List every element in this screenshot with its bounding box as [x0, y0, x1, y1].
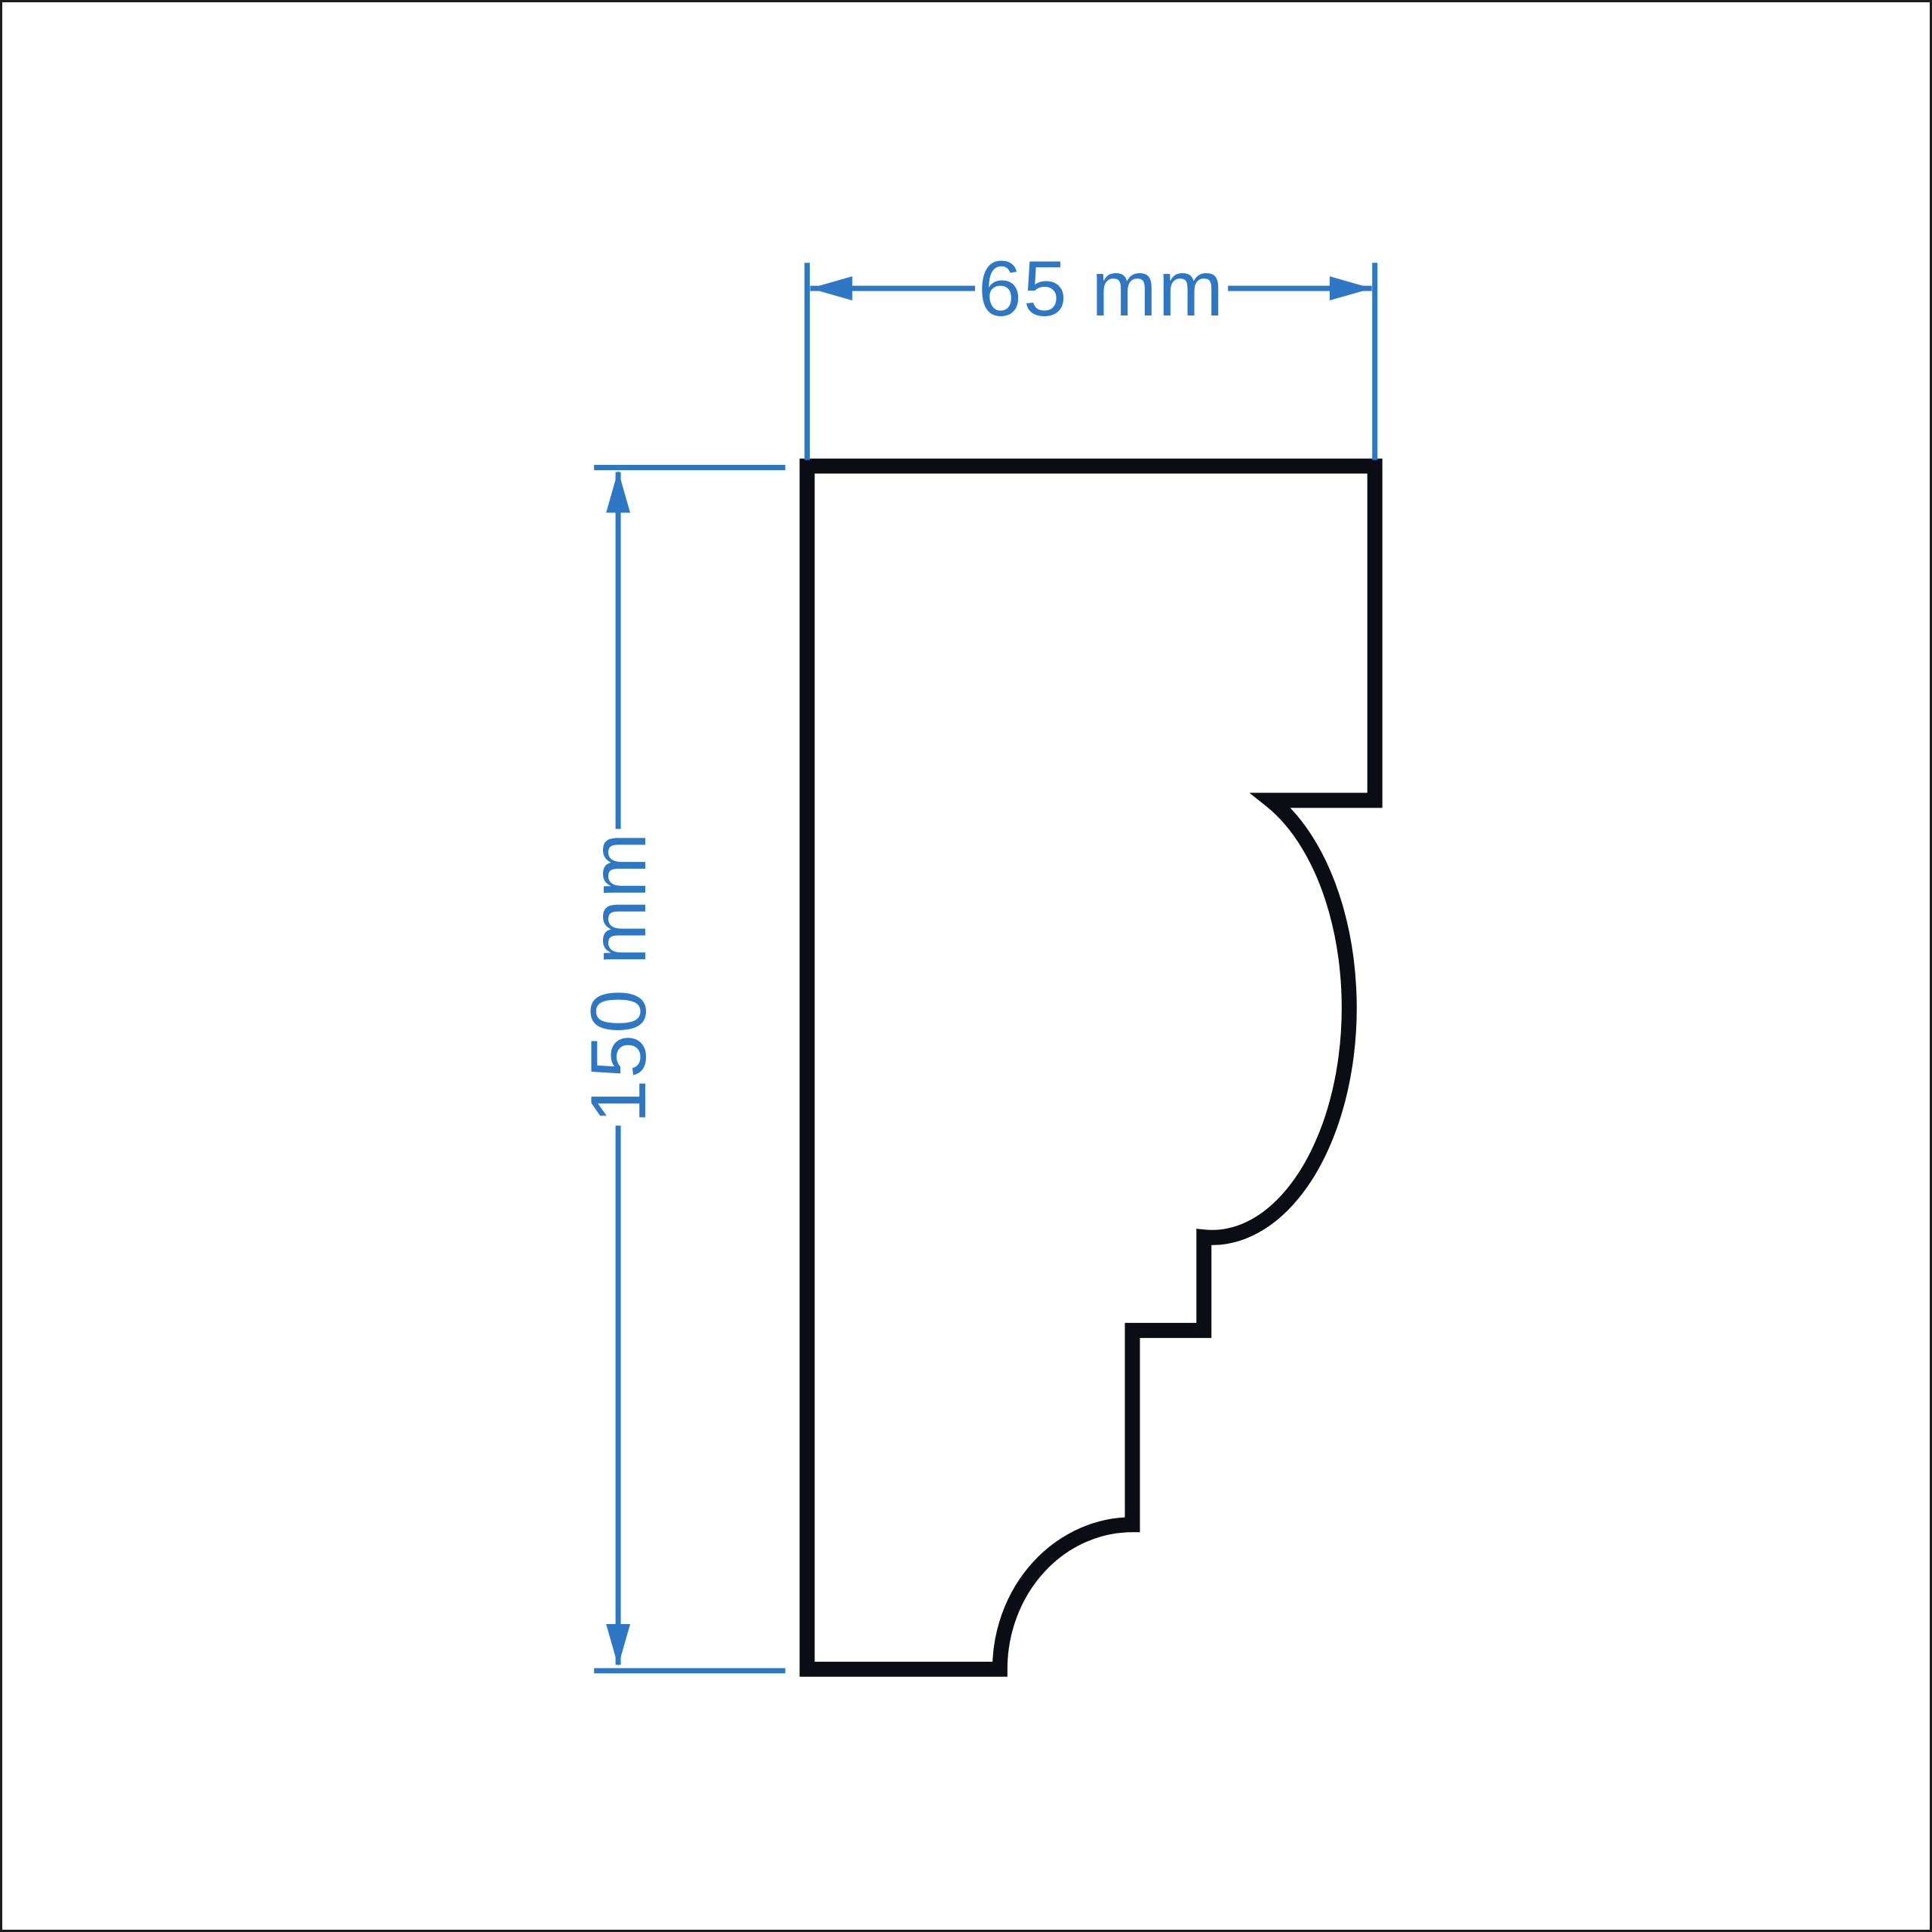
- drawing-sheet: 65 mm 150 mm: [0, 0, 1932, 1932]
- molding-profile-outline: [807, 466, 1374, 1669]
- width-arrow-right-icon: [1330, 276, 1372, 300]
- height-dimension-label: 150 mm: [574, 832, 662, 1124]
- width-arrow-left-icon: [810, 276, 852, 300]
- technical-drawing-canvas: 65 mm 150 mm: [2, 2, 1930, 1930]
- height-arrow-up-icon: [606, 471, 630, 513]
- height-dimension: 150 mm: [574, 468, 785, 1671]
- height-arrow-down-icon: [606, 1624, 630, 1666]
- width-dimension: 65 mm: [807, 245, 1374, 460]
- width-dimension-label: 65 mm: [978, 245, 1225, 332]
